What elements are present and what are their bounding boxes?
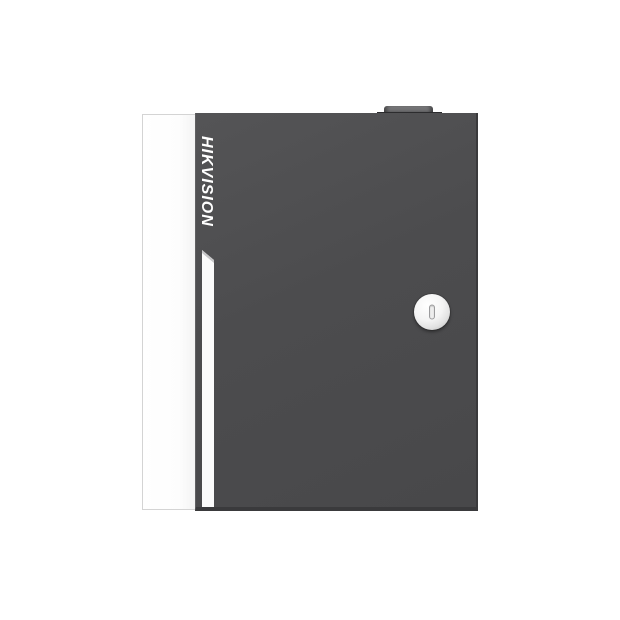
accent-stripe xyxy=(202,250,214,507)
page: { "product": { "brand": "HIKVISION" }, "… xyxy=(0,0,620,620)
brand-logo-text: HIKVISION xyxy=(196,136,216,227)
cam-lock xyxy=(414,294,450,330)
enclosure-side-panel xyxy=(142,114,195,510)
brand-logo: HIKVISION xyxy=(196,136,216,232)
product-photo: HIKVISION xyxy=(0,0,620,620)
keyhole-icon xyxy=(429,305,435,320)
enclosure-door: HIKVISION xyxy=(195,113,478,511)
